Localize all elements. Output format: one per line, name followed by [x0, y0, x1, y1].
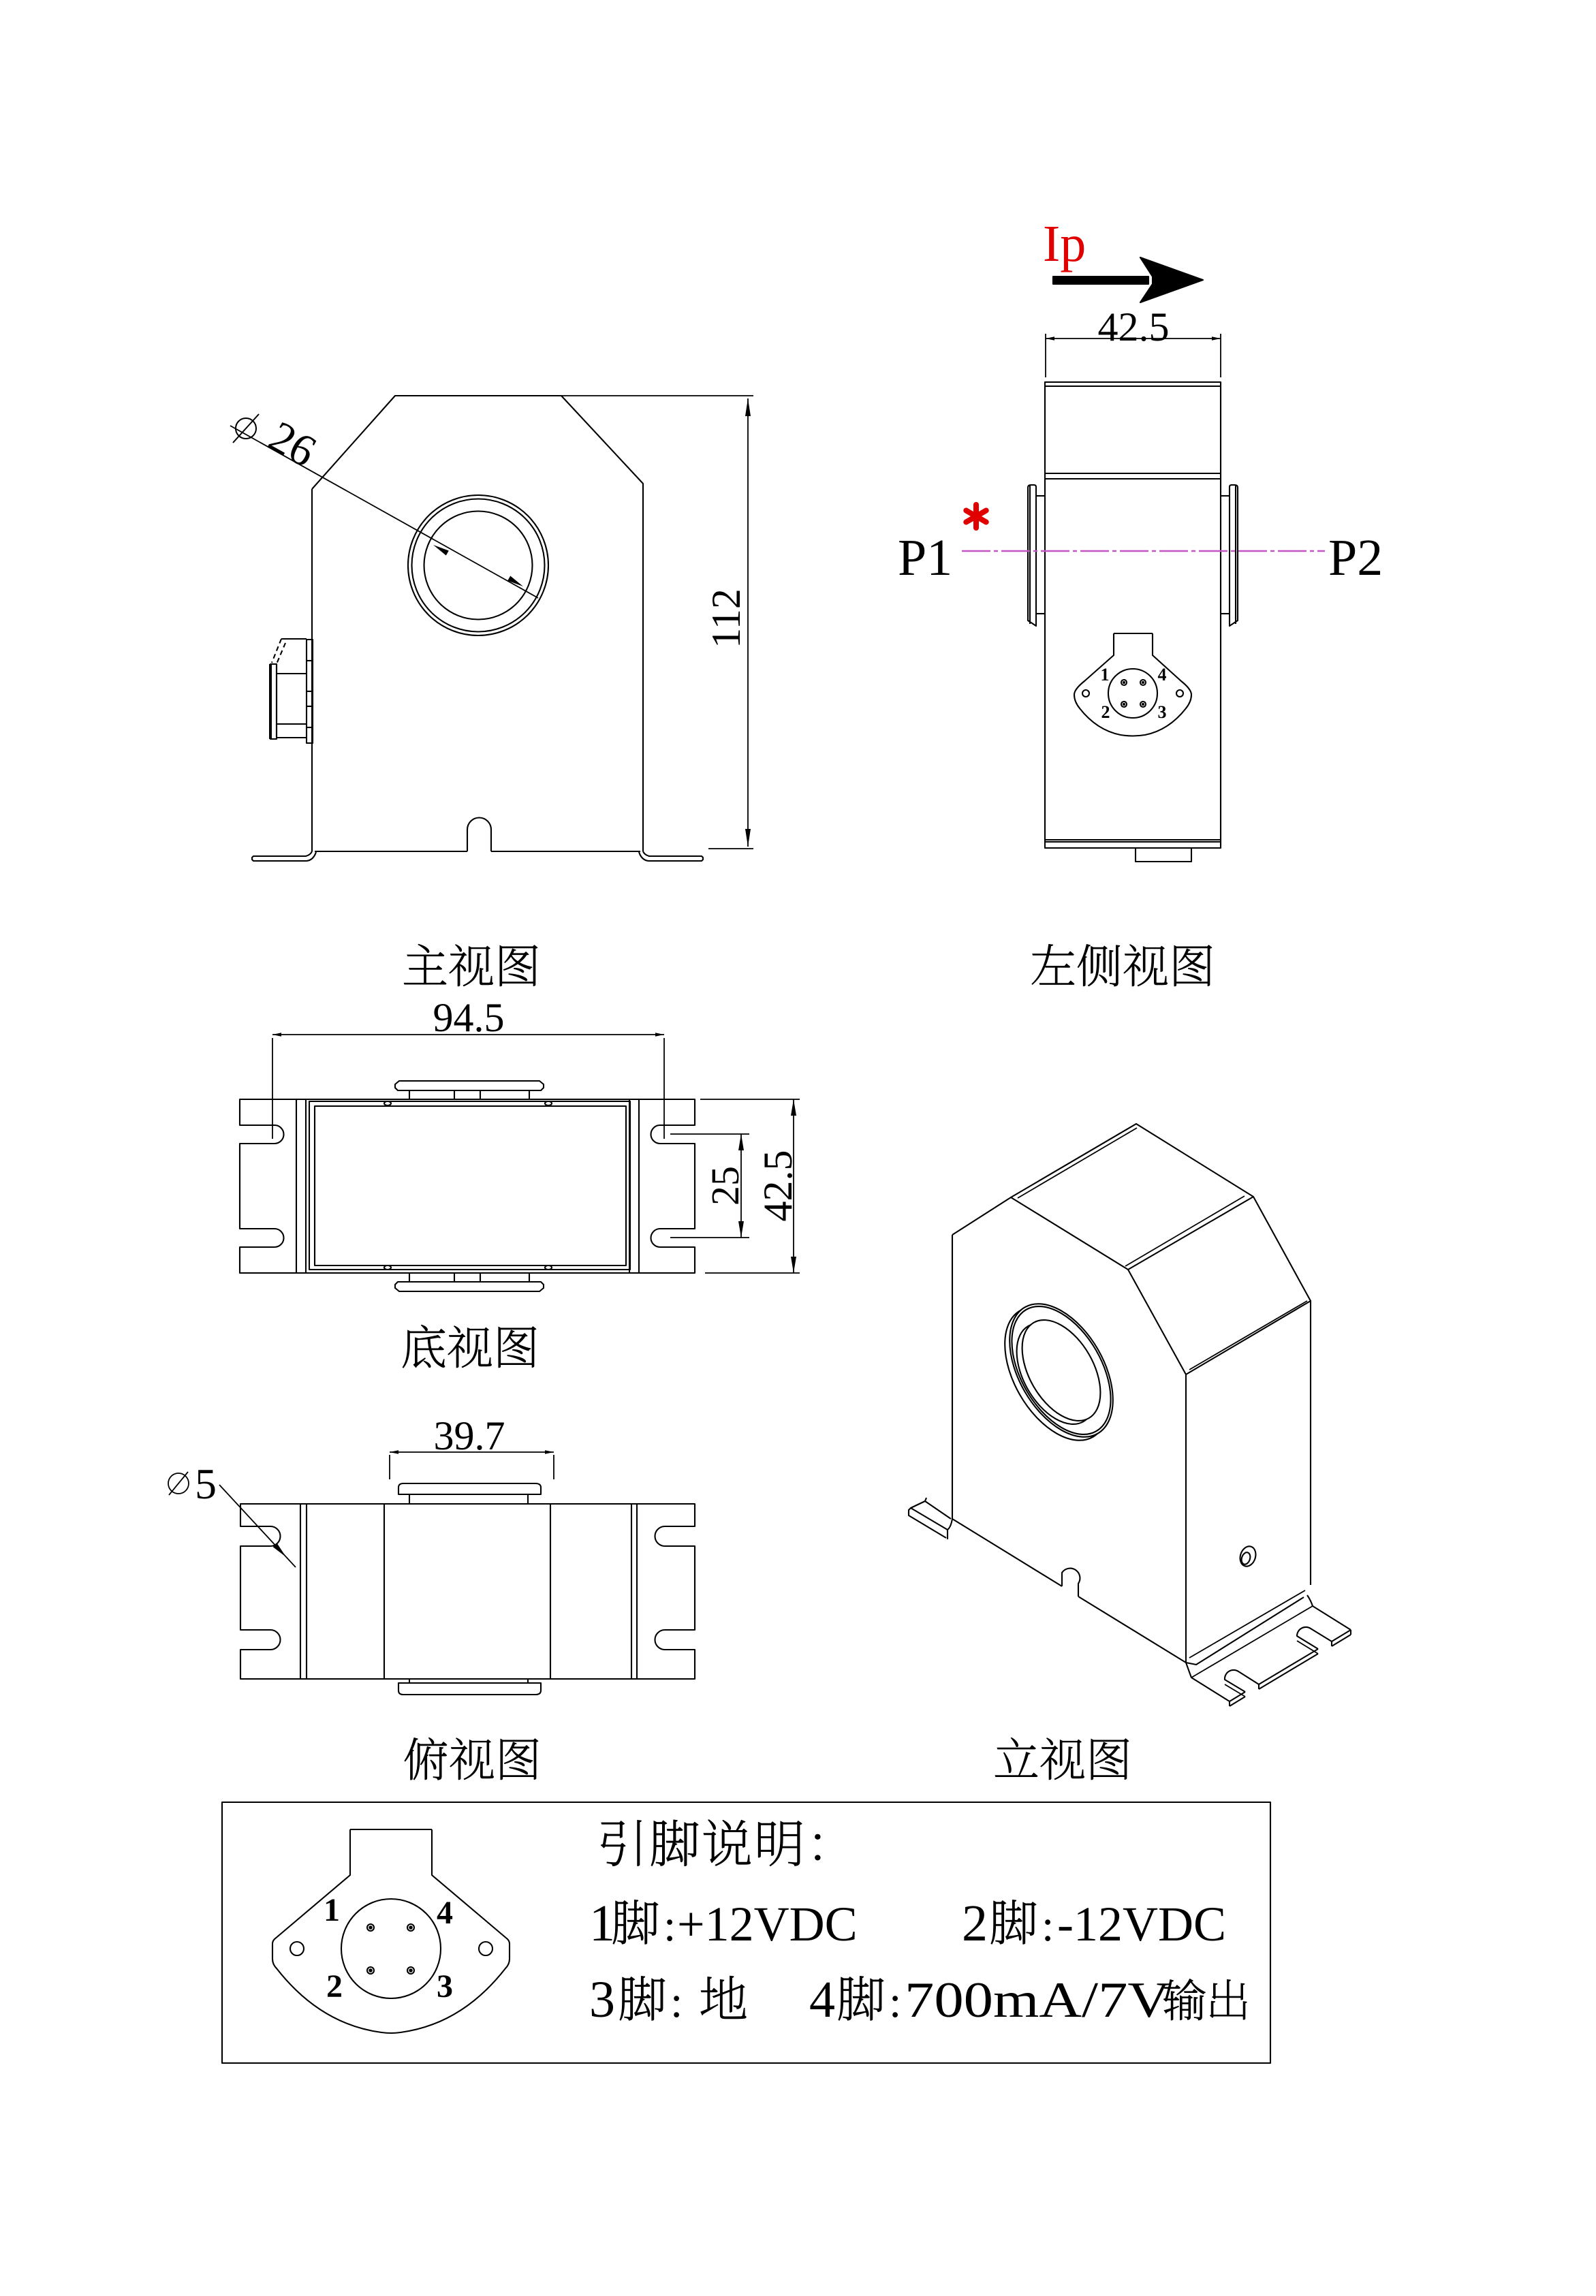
svg-text::: : — [1042, 1901, 1054, 1951]
svg-text:P2: P2 — [1328, 529, 1383, 586]
svg-text:39.7: 39.7 — [434, 1413, 505, 1458]
svg-text:2: 2 — [326, 1968, 343, 2004]
svg-text:700mA/7V: 700mA/7V — [905, 1972, 1170, 2028]
svg-text::: : — [663, 1901, 676, 1951]
svg-text:-12VDC: -12VDC — [1057, 1897, 1226, 1951]
svg-text:+12VDC: +12VDC — [677, 1897, 858, 1951]
svg-text:1: 1 — [324, 1892, 340, 1928]
svg-text:2: 2 — [1101, 702, 1110, 722]
svg-text:1: 1 — [1101, 665, 1110, 685]
svg-text:94.5: 94.5 — [433, 995, 505, 1040]
svg-text:3: 3 — [589, 1971, 615, 2028]
svg-text:4: 4 — [437, 1895, 453, 1931]
svg-text:5: 5 — [195, 1460, 217, 1508]
svg-text:3: 3 — [437, 1968, 453, 2004]
svg-text:2: 2 — [962, 1895, 988, 1952]
svg-text:42.5: 42.5 — [755, 1150, 800, 1222]
svg-text:4: 4 — [1158, 665, 1167, 685]
svg-text::: : — [889, 1977, 901, 2027]
svg-text:4: 4 — [809, 1971, 835, 2028]
svg-text:42.5: 42.5 — [1098, 304, 1170, 349]
svg-text:3: 3 — [1158, 702, 1167, 722]
svg-text::: : — [670, 1977, 683, 2027]
svg-text:P1: P1 — [898, 529, 952, 586]
svg-text:1: 1 — [589, 1895, 615, 1952]
svg-text:Ip: Ip — [1043, 215, 1086, 272]
svg-text:112: 112 — [704, 588, 749, 648]
svg-text:25: 25 — [703, 1166, 747, 1206]
